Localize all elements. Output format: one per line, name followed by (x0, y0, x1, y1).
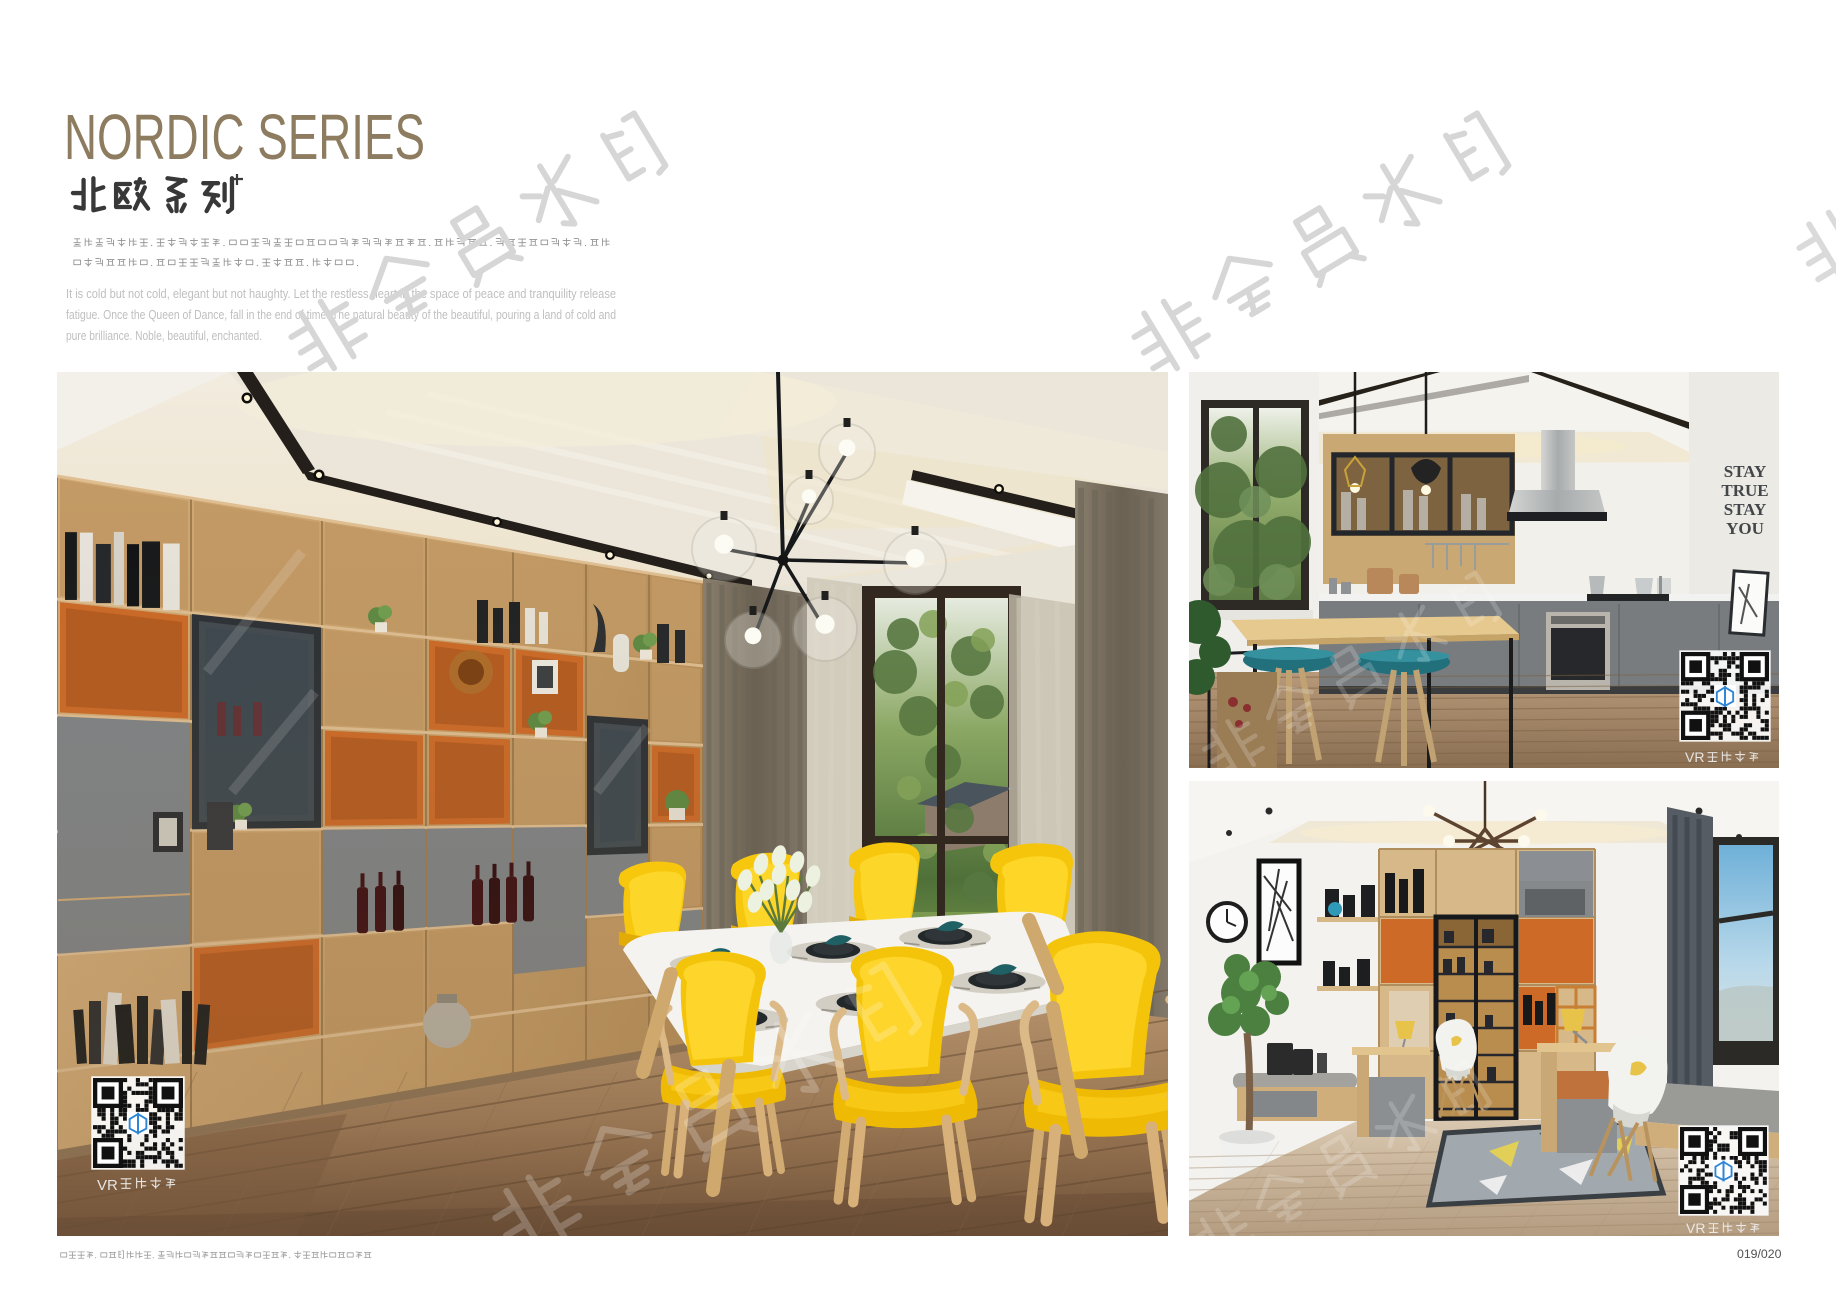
svg-text:STAY: STAY (1724, 500, 1767, 519)
svg-text:TRUE: TRUE (1721, 481, 1768, 500)
svg-text:VR: VR (1686, 1220, 1705, 1236)
svg-text:VR: VR (97, 1177, 118, 1194)
svg-text:VR: VR (1685, 749, 1704, 765)
svg-text:YOU: YOU (1726, 519, 1764, 538)
svg-text:STAY: STAY (1724, 462, 1767, 481)
